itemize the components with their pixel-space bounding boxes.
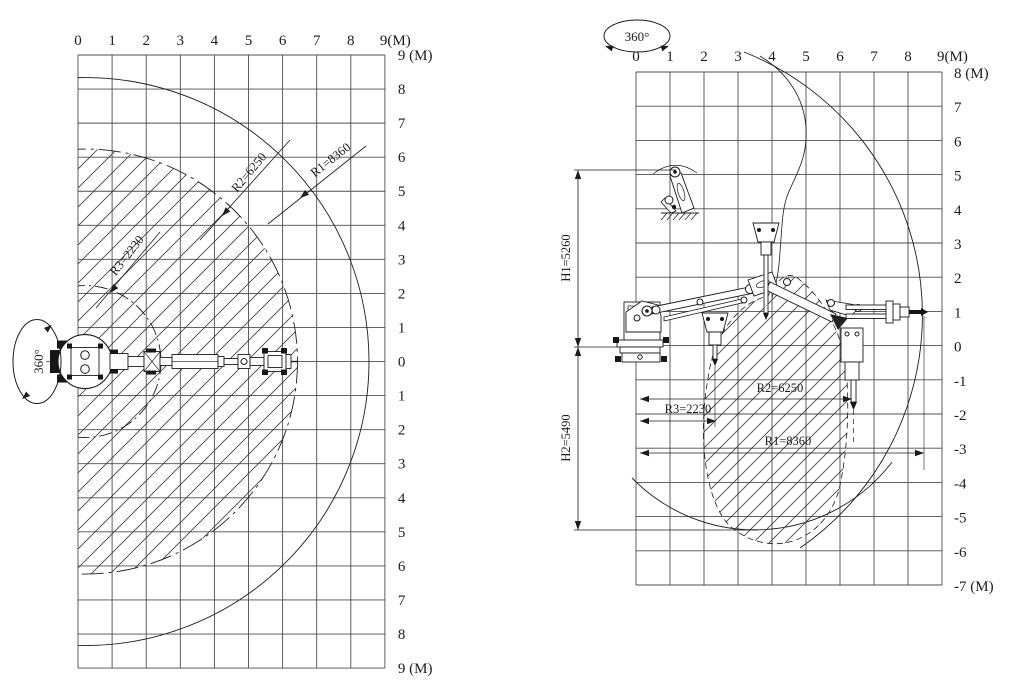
plan-x-tick: 5: [245, 33, 253, 49]
plan-y-tick: 4: [398, 491, 406, 507]
elev-y-tick: 6: [954, 134, 962, 150]
elev-label-R1: R1=8360: [765, 434, 812, 448]
elev-x-tick: 3: [734, 49, 742, 65]
plan-y-tick: 2: [398, 286, 406, 302]
working-range-svg: 0123456789(M)9 (M)876543210123456789 (M)…: [0, 0, 1024, 691]
plan-y-tick: 8: [398, 627, 406, 643]
elev-y-tick: 4: [954, 203, 962, 219]
plan-y-tick: 1: [398, 320, 406, 336]
elev-y-tick: 8 (M): [954, 66, 989, 82]
working-range-drawing: 0123456789(M)9 (M)876543210123456789 (M)…: [0, 0, 1024, 691]
plan-y-tick: 2: [398, 423, 406, 439]
elev-y-tick: 1: [954, 305, 962, 321]
elev-label-R2: R2=6250: [757, 381, 804, 395]
elev-y-tick: -5: [954, 511, 967, 527]
elev-y-tick: -7 (M): [954, 579, 994, 595]
elev-x-tick: 2: [700, 49, 708, 65]
diagram-sheet: 0123456789(M)9 (M)876543210123456789 (M)…: [0, 0, 1024, 691]
plan-x-tick: 4: [211, 33, 219, 49]
elev-y-tick: -6: [954, 545, 967, 561]
plan-x-tick: 1: [108, 33, 116, 49]
elev-y-tick: -1: [954, 374, 967, 390]
plan-x-tick: 6: [279, 33, 287, 49]
plan-y-tick: 3: [398, 252, 406, 268]
plan-y-tick: 8: [398, 82, 406, 98]
elev-y-tick: 0: [954, 340, 962, 356]
plan-y-tick: 3: [398, 457, 406, 473]
elev-y-tick: 5: [954, 169, 962, 185]
elev-x-tick: 1: [666, 49, 674, 65]
plan-view-diagram: 0123456789(M)9 (M)876543210123456789 (M)…: [0, 33, 432, 677]
elev-x-tick: 8: [904, 49, 912, 65]
elev-label-H2: H2=5490: [559, 414, 573, 461]
elev-y-tick: 2: [954, 271, 962, 287]
plan-y-tick: 1: [398, 389, 406, 405]
elev-rotation-label: 360°: [625, 29, 650, 44]
elev-horizontal-drill-tip: [921, 308, 928, 316]
plan-y-tick: 6: [398, 559, 406, 575]
elev-vertical-drill-tip: [850, 402, 857, 410]
plan-x-tick: 9(M): [380, 33, 411, 49]
plan-y-tick: 9 (M): [398, 48, 433, 64]
plan-y-tick: 6: [398, 150, 406, 166]
plan-y-tick: 4: [398, 218, 406, 234]
plan-x-tick: 3: [177, 33, 185, 49]
elev-x-tick: 0: [632, 49, 640, 65]
plan-x-tick: 8: [347, 33, 355, 49]
elev-x-tick: 9(M): [937, 49, 968, 65]
elev-x-tick: 6: [836, 49, 844, 65]
elevation-view-diagram: 0123456789(M)8 (M)76543210-1-2-3-4-5-6-7…: [559, 20, 994, 595]
elev-y-tick: -3: [954, 442, 967, 458]
plan-x-tick: 2: [142, 33, 150, 49]
elev-label-H1: H1=5260: [559, 234, 573, 281]
plan-rotation-label: 360°: [31, 349, 46, 374]
elev-y-tick: -4: [954, 476, 967, 492]
elev-y-tick: 3: [954, 237, 962, 253]
elev-x-tick: 5: [802, 49, 810, 65]
elev-rotation-symbol: 360°: [604, 20, 670, 52]
plan-x-tick: 7: [313, 33, 321, 49]
elev-y-tick: 7: [954, 100, 962, 116]
plan-y-tick: 7: [398, 116, 406, 132]
plan-y-tick: 5: [398, 525, 406, 541]
elev-y-tick: -2: [954, 408, 967, 424]
plan-y-tick: 7: [398, 593, 406, 609]
elev-label-R3: R3=2230: [665, 402, 712, 416]
plan-y-tick: 0: [398, 355, 406, 371]
plan-x-tick: 0: [74, 33, 82, 49]
plan-y-tick: 9 (M): [398, 661, 433, 677]
elev-x-tick: 7: [870, 49, 878, 65]
plan-y-tick: 5: [398, 184, 406, 200]
